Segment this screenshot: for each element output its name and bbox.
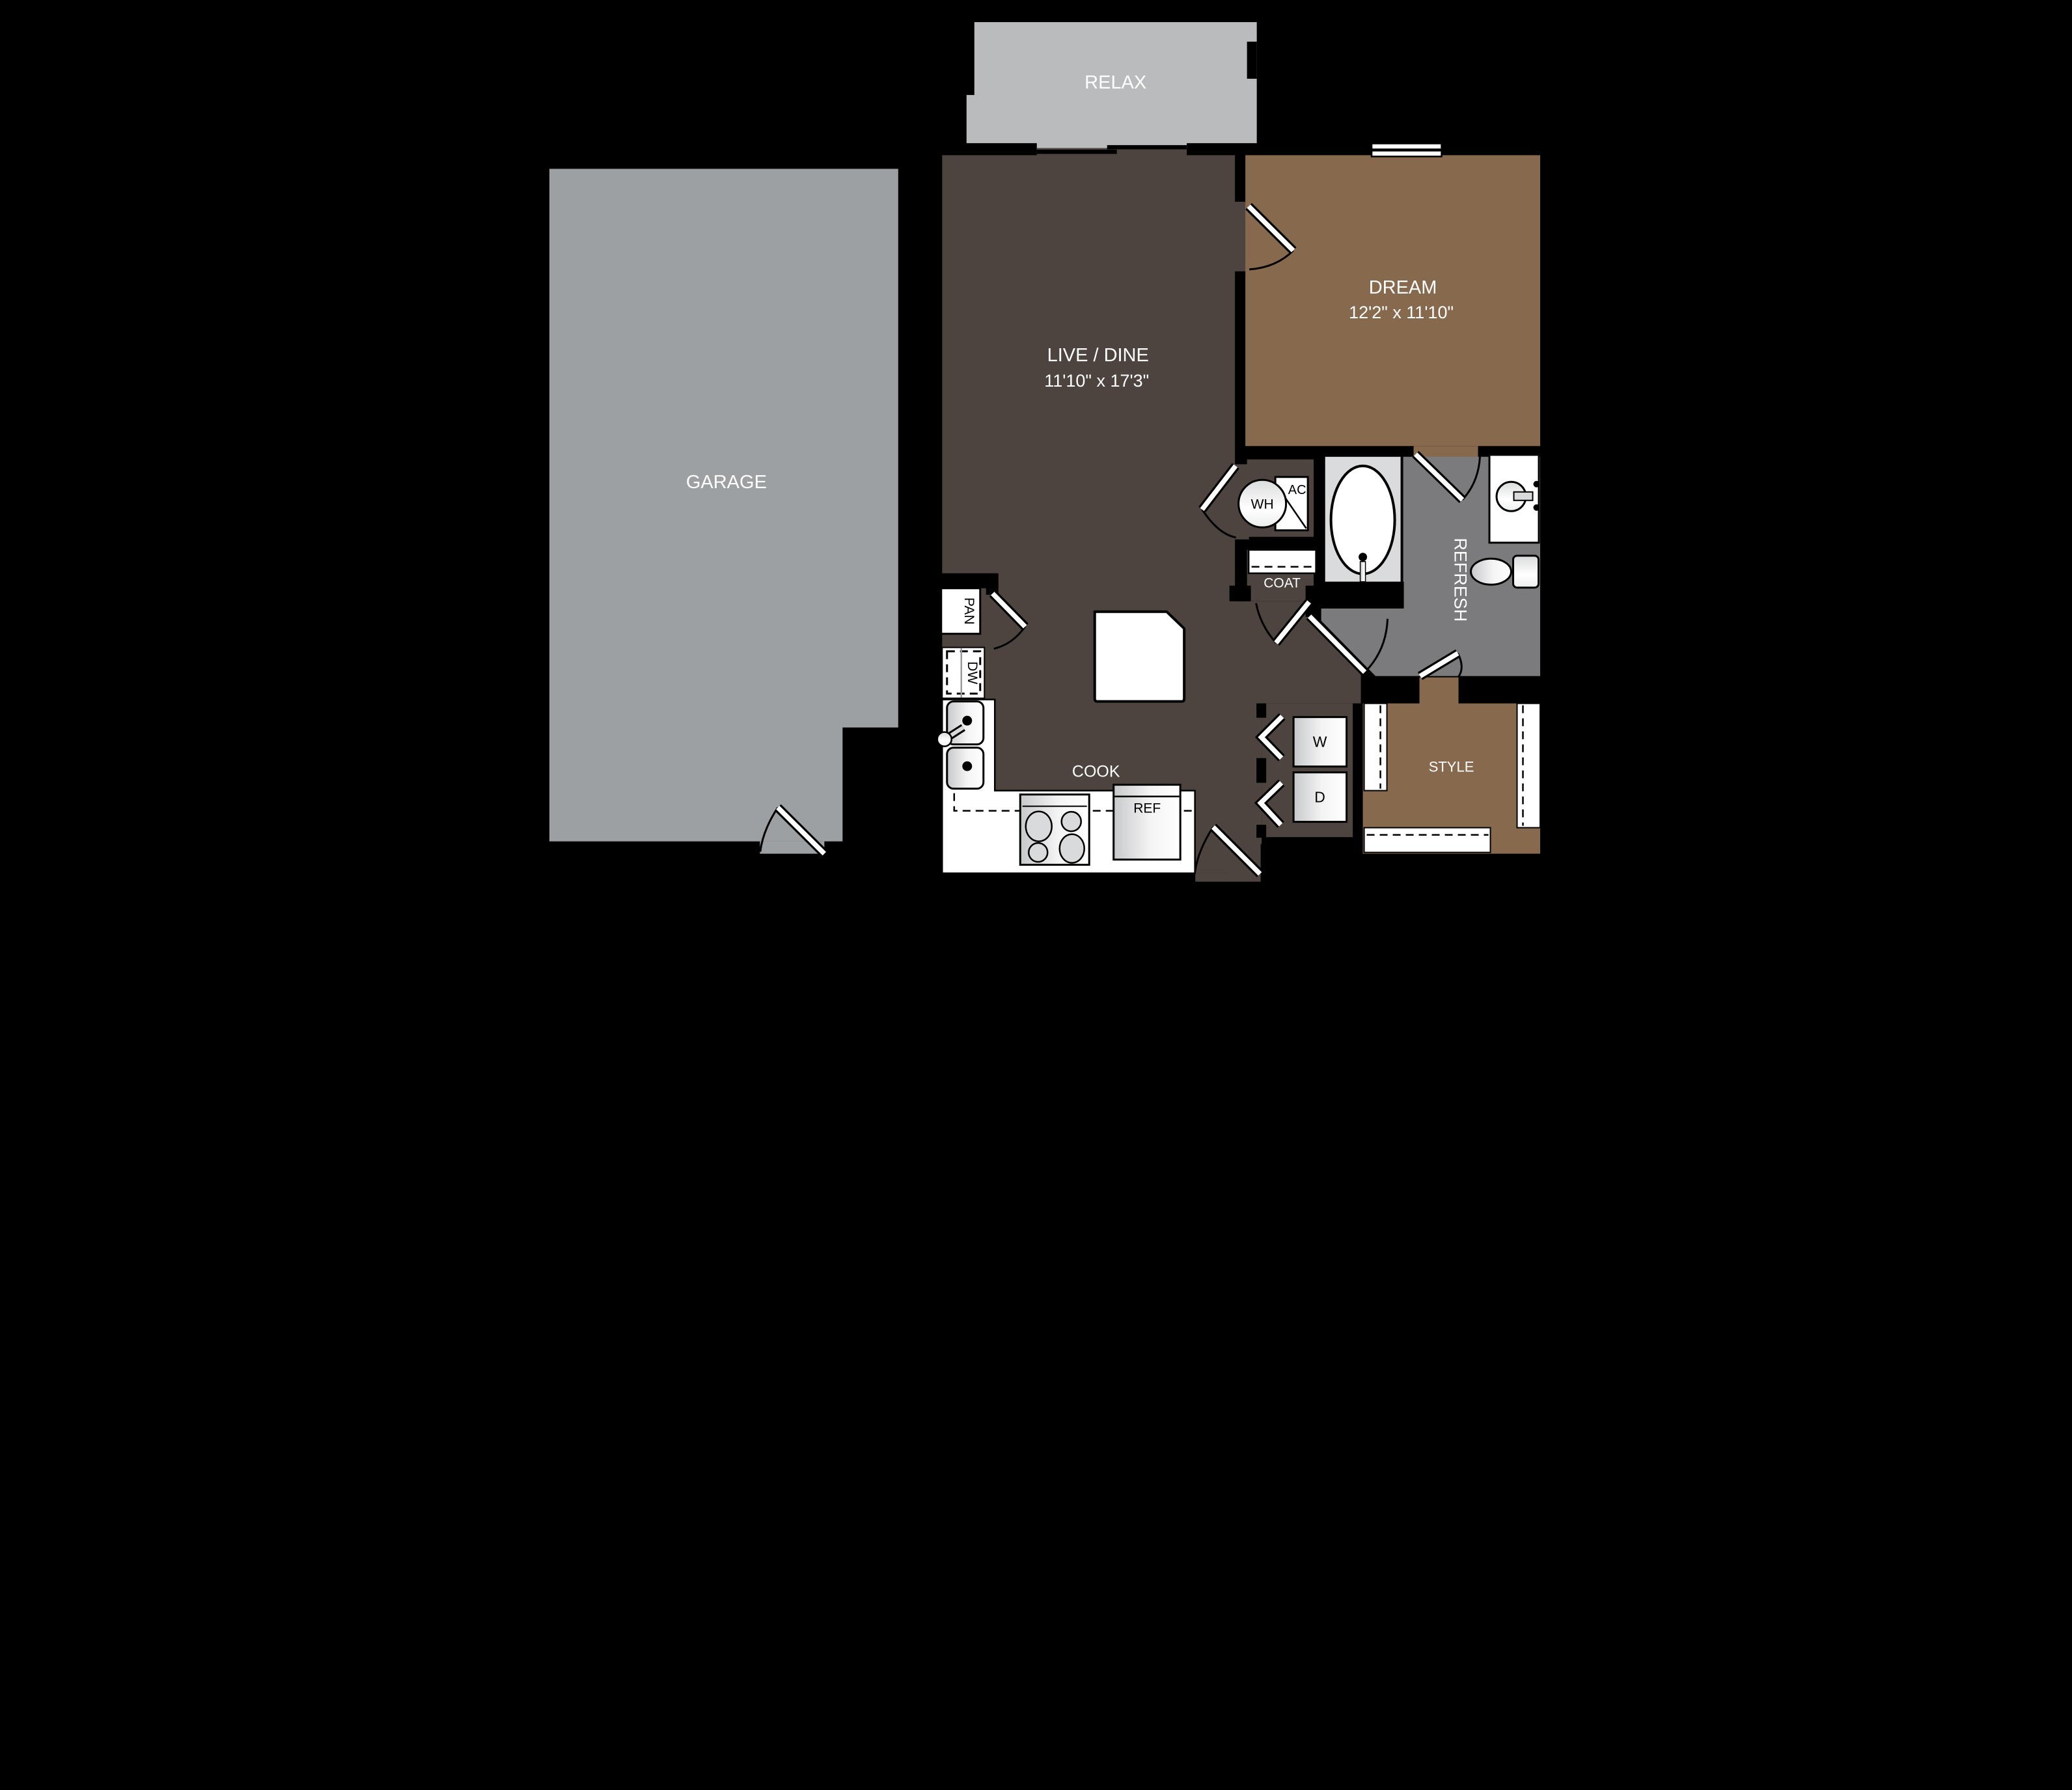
dream-floor (1245, 155, 1540, 446)
tub-wall-left (1314, 457, 1325, 603)
style-label: STYLE (1429, 759, 1474, 775)
sink-faucet-knob (937, 732, 952, 747)
vanity-faucet (1514, 492, 1533, 501)
dryer-label: D (1314, 789, 1325, 806)
bifold-jamb-1 (1256, 704, 1266, 718)
dream-window-outer (1372, 143, 1441, 149)
relax-label: RELAX (1084, 72, 1146, 93)
livedine-dims: 11'10" x 17'3" (1044, 371, 1149, 391)
dishwasher-label: DW (965, 661, 980, 684)
stove-burner-tl (1026, 812, 1052, 842)
vanity-knob-top (1534, 481, 1540, 488)
toilet-bowl (1471, 558, 1512, 585)
dream-window-inner (1372, 150, 1441, 156)
tub-spout (1361, 562, 1366, 582)
relax-right-post (1247, 42, 1257, 79)
style-shelf-right (1517, 704, 1540, 828)
stove-burner-br (1060, 834, 1084, 863)
floorplan-canvas: REF AC WH W D (518, 0, 1554, 895)
garage-label: GARAGE (686, 472, 767, 493)
sink-drain-upper (962, 716, 972, 726)
coat-label: COAT (1264, 576, 1301, 591)
style-shelf-left (1364, 704, 1387, 791)
ac-label: AC (1288, 483, 1306, 497)
relax-left-wall (965, 21, 974, 95)
livedine-label: LIVE / DINE (1047, 345, 1149, 366)
vanity-knob-bottom (1534, 504, 1540, 511)
pantry-label: PAN (961, 598, 976, 625)
dream-label: DREAM (1369, 277, 1437, 298)
bifold-jamb-2 (1256, 758, 1266, 783)
sink-drain-lower (962, 762, 972, 771)
style-shelf-bottom (1364, 828, 1491, 853)
coat-shelf (1249, 550, 1316, 573)
cook-label: COOK (1072, 763, 1120, 781)
stove-burner-tr (1062, 812, 1081, 831)
utility: AC WH (1239, 477, 1316, 573)
entry-jamb-right (1261, 844, 1286, 875)
floorplan-page: REF AC WH W D (518, 0, 1554, 895)
kitchen-island (1095, 612, 1184, 702)
coat-jamb-left (1230, 586, 1251, 601)
bifold-jamb-3 (1256, 825, 1266, 838)
style-door-pass (1420, 678, 1459, 705)
refresh-label: REFRESH (1451, 538, 1471, 622)
dream-dims: 12'2" x 11'10" (1349, 303, 1454, 322)
slider-panel-left (1037, 150, 1117, 154)
washer-label: W (1313, 734, 1327, 750)
stove-burner-bl (1029, 843, 1047, 862)
tub-drain (1359, 553, 1367, 561)
water-heater-label: WH (1251, 497, 1274, 512)
toilet-tank (1513, 556, 1539, 588)
refrigerator-label: REF (1133, 801, 1161, 816)
tub-wall-bottom (1314, 582, 1403, 609)
slider-panel-right (1107, 145, 1187, 149)
